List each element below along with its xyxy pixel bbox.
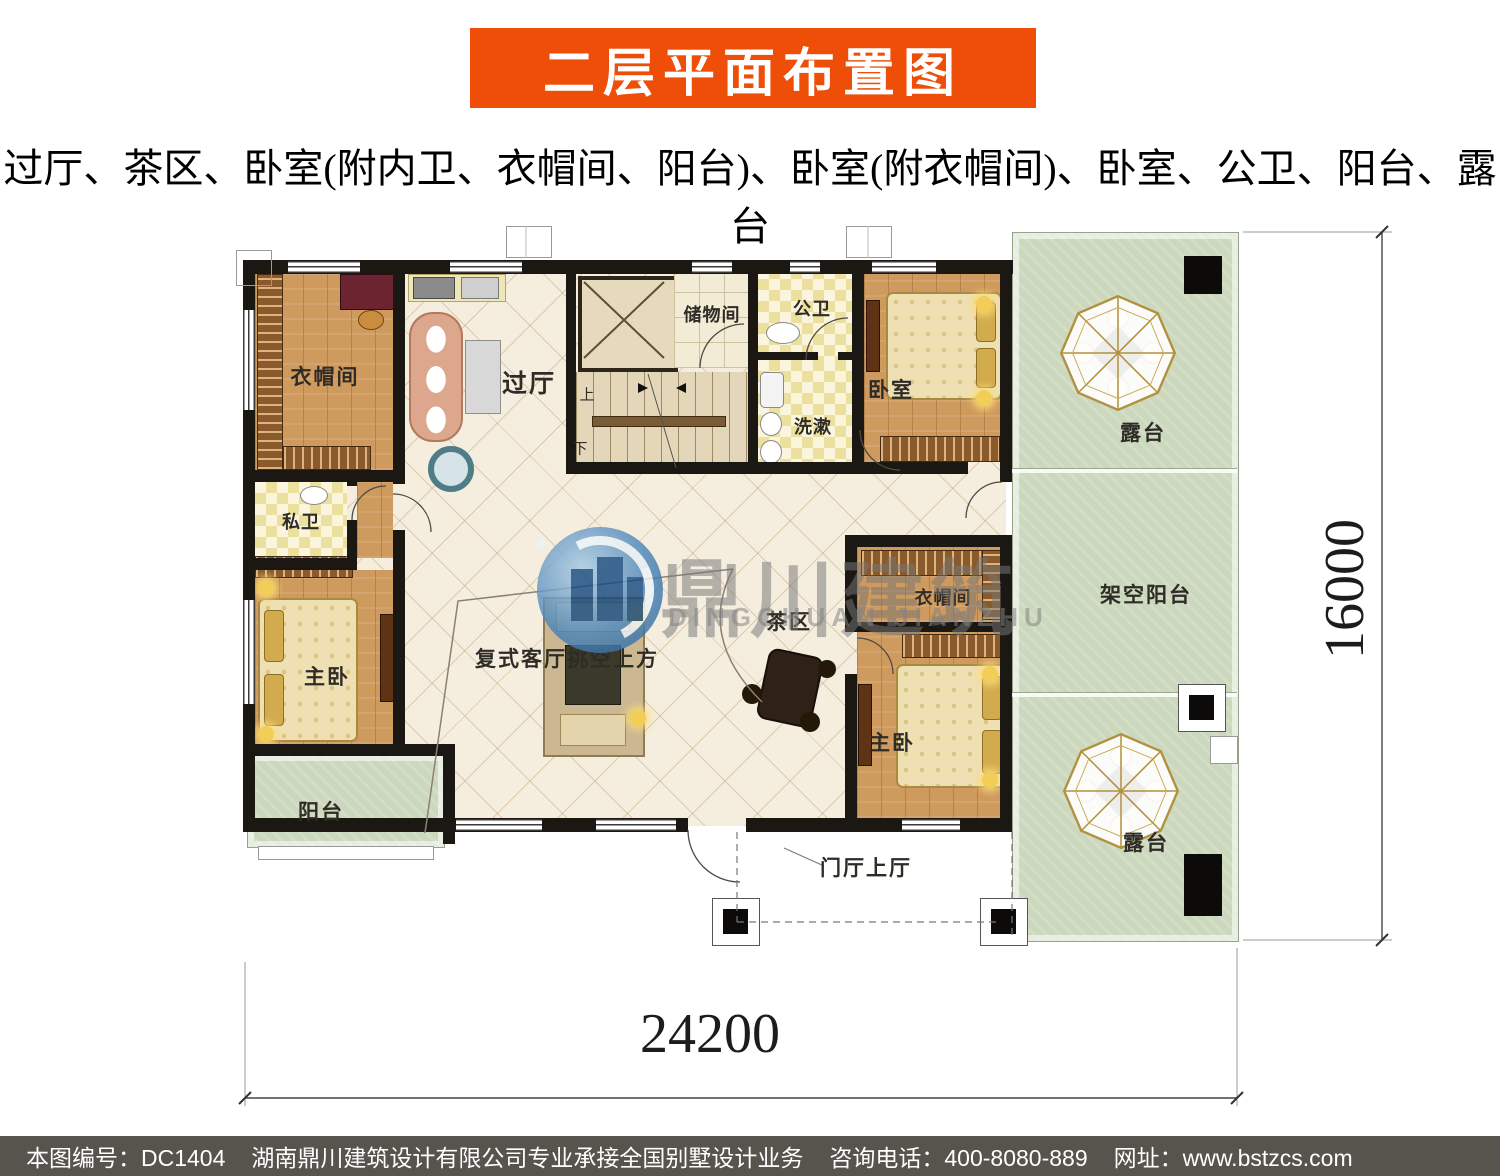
floor-plan-page: 二层平面布置图 过厅、茶区、卧室(附内卫、衣帽间、阳台)、卧室(附衣帽间)、卧室…	[0, 0, 1500, 1176]
drawing-code: 本图编号：DC1404	[26, 1139, 225, 1173]
room-label-elevated-balcony: 架空阳台	[1100, 579, 1192, 609]
room-label-terrace-bottom: 露台	[1123, 827, 1169, 857]
room-label-storage: 储物间	[684, 301, 741, 327]
room-label-private-bath: 私卫	[282, 508, 320, 534]
sparkle-icon: ✦	[531, 529, 553, 560]
stair-up-label: 上	[579, 384, 594, 405]
room-label-public-bath: 公卫	[793, 295, 831, 321]
room-label-wash: 洗漱	[794, 413, 832, 439]
room-label-master-left: 主卧	[304, 661, 350, 691]
dimension-height: 16000	[1313, 509, 1377, 669]
room-label-bedroom-tr: 卧室	[868, 374, 914, 404]
watermark-english: DINGCHUAN JIANZHU	[668, 602, 1049, 633]
room-label-balcony: 阳台	[298, 796, 344, 826]
watermark-chinese: 鼎川建筑	[660, 533, 1020, 654]
phone-number: 咨询电话：400-8080-889	[829, 1139, 1087, 1173]
company-name: 湖南鼎川建筑设计有限公司专业承接全国别墅设计业务	[251, 1139, 803, 1173]
room-label-hallway: 过厅	[502, 364, 556, 400]
footer-bar: 本图编号：DC1404 湖南鼎川建筑设计有限公司专业承接全国别墅设计业务 咨询电…	[0, 1136, 1500, 1176]
dimension-width: 24200	[640, 1002, 780, 1066]
website: 网址：www.bstzcs.com	[1114, 1139, 1353, 1173]
room-label-cloakroom-tl: 衣帽间	[291, 361, 360, 391]
room-label-master-right: 主卧	[869, 727, 915, 757]
stair-down-label: 下	[572, 438, 587, 459]
dingchuan-logo-icon: ✦	[537, 527, 663, 653]
room-label-entry-hall: 门厅上厅	[820, 852, 912, 882]
room-label-terrace-top: 露台	[1120, 417, 1166, 447]
